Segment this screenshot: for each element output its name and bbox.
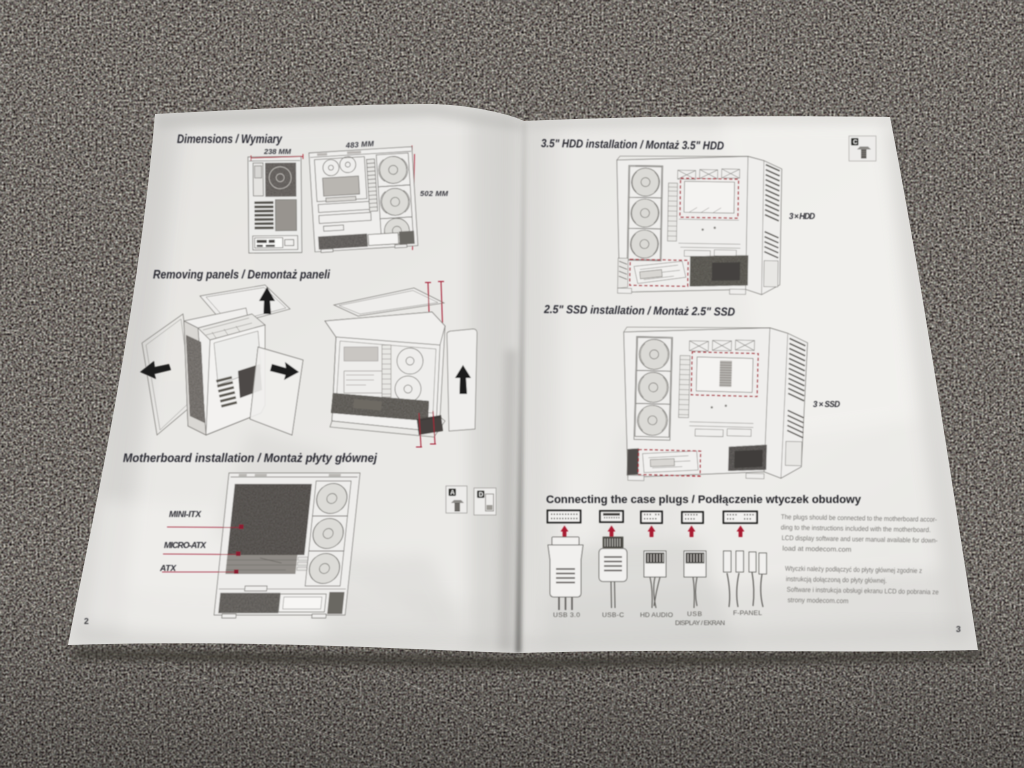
svg-text:502 MM: 502 MM xyxy=(420,189,449,198)
svg-text:238 MM: 238 MM xyxy=(263,147,292,156)
svg-text:3 × SSD: 3 × SSD xyxy=(813,400,840,409)
svg-text:Dimensions / Wymiary: Dimensions / Wymiary xyxy=(177,134,283,146)
svg-text:A: A xyxy=(450,490,455,497)
svg-text:C: C xyxy=(853,139,858,146)
svg-text:Removing panels / Demontaż pan: Removing panels / Demontaż paneli xyxy=(153,270,331,282)
svg-text:3.5" HDD installation / Montaż: 3.5" HDD installation / Montaż 3.5" HDD xyxy=(541,138,724,153)
svg-text:USB-C: USB-C xyxy=(602,612,624,619)
svg-text:F-PANEL: F-PANEL xyxy=(733,610,762,617)
svg-text:MICRO-ATX: MICRO-ATX xyxy=(164,540,207,550)
svg-text:USB 3.0: USB 3.0 xyxy=(553,612,580,619)
svg-text:load at modecom.com: load at modecom.com xyxy=(782,546,851,554)
svg-text:3 × HDD: 3 × HDD xyxy=(789,212,815,221)
svg-text:HD AUDIO: HD AUDIO xyxy=(640,612,673,619)
svg-text:DISPLAY / EKRAN: DISPLAY / EKRAN xyxy=(675,620,725,627)
svg-text:ATX: ATX xyxy=(159,563,177,573)
svg-text:Motherboard installation / Mon: Motherboard installation / Montaż płyty … xyxy=(123,453,378,465)
svg-text:strony modecom.com: strony modecom.com xyxy=(787,597,848,605)
svg-text:MINI-ITX: MINI-ITX xyxy=(169,509,202,519)
svg-text:3: 3 xyxy=(956,624,961,634)
svg-text:Connecting the case plugs / Po: Connecting the case plugs / Podłączenie … xyxy=(546,494,862,506)
svg-text:USB: USB xyxy=(687,611,702,618)
svg-text:2: 2 xyxy=(84,616,89,626)
svg-text:D: D xyxy=(479,492,484,499)
